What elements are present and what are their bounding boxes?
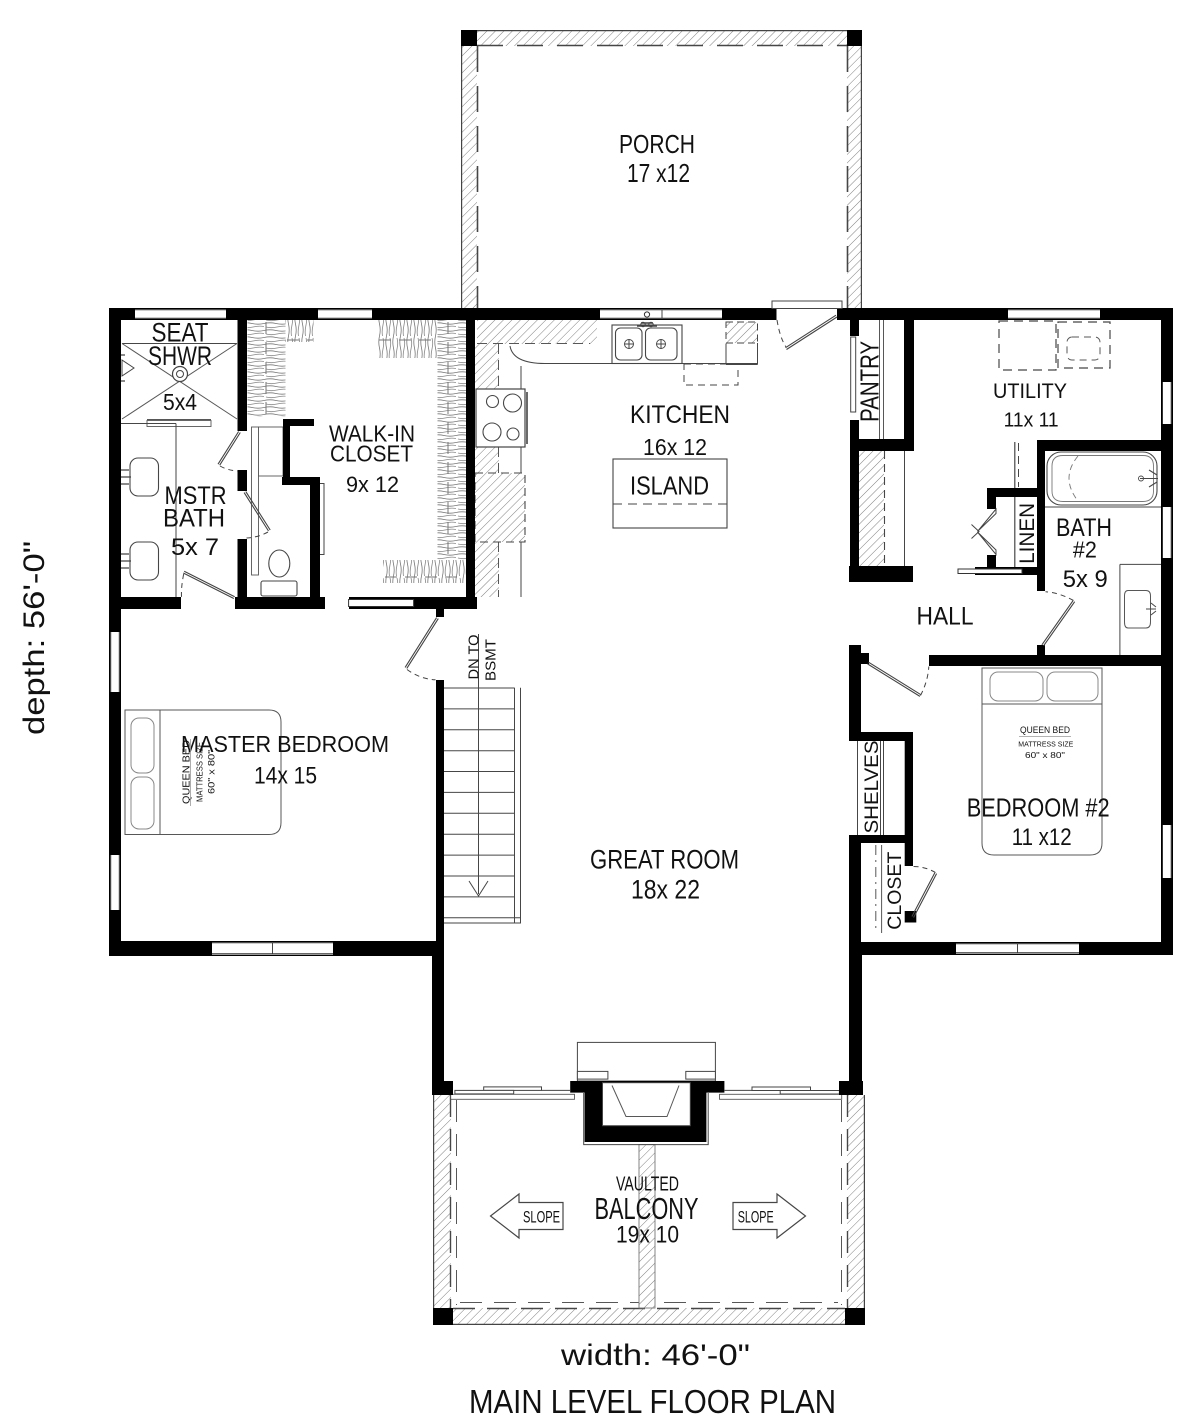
svg-text:CLOSET: CLOSET <box>885 851 906 929</box>
svg-text:9x 12: 9x 12 <box>346 472 399 497</box>
svg-text:BSMT: BSMT <box>483 639 500 681</box>
svg-text:5x 7: 5x 7 <box>171 534 219 561</box>
svg-text:#2: #2 <box>1073 537 1097 563</box>
svg-text:LINEN: LINEN <box>1016 503 1039 564</box>
svg-text:KITCHEN: KITCHEN <box>630 401 730 429</box>
svg-text:GREAT ROOM: GREAT ROOM <box>590 844 739 874</box>
svg-text:HALL: HALL <box>917 603 974 631</box>
svg-text:MATTRESS SIZE: MATTRESS SIZE <box>196 742 205 802</box>
svg-text:PANTRY: PANTRY <box>855 341 885 422</box>
svg-text:UTILITY: UTILITY <box>993 380 1067 403</box>
svg-text:SLOPE: SLOPE <box>738 1208 774 1227</box>
svg-text:SHWR: SHWR <box>148 341 212 371</box>
svg-text:SHELVES: SHELVES <box>862 741 883 834</box>
svg-text:11x 11: 11x 11 <box>1004 410 1059 432</box>
svg-text:MAIN LEVEL FLOOR PLAN: MAIN LEVEL FLOOR PLAN <box>469 1383 836 1420</box>
svg-text:depth: 56'-0": depth: 56'-0" <box>18 541 51 735</box>
svg-text:16x 12: 16x 12 <box>643 434 707 460</box>
svg-text:BATH: BATH <box>163 504 225 532</box>
svg-text:60" x 80": 60" x 80" <box>207 750 217 794</box>
svg-text:BEDROOM #2: BEDROOM #2 <box>967 793 1110 823</box>
svg-text:60" x 80": 60" x 80" <box>1025 750 1065 760</box>
svg-text:width: 46'-0": width: 46'-0" <box>560 1339 750 1372</box>
svg-text:CLOSET: CLOSET <box>330 440 413 466</box>
svg-text:19x 10: 19x 10 <box>616 1222 679 1249</box>
svg-text:17 x12: 17 x12 <box>627 158 690 188</box>
svg-text:MATTRESS SIZE: MATTRESS SIZE <box>1018 740 1073 749</box>
svg-text:ISLAND: ISLAND <box>630 470 709 500</box>
svg-text:5x 9: 5x 9 <box>1063 566 1108 593</box>
svg-text:11 x12: 11 x12 <box>1012 824 1072 851</box>
svg-text:SLOPE: SLOPE <box>523 1208 560 1227</box>
svg-text:DN TO: DN TO <box>466 635 483 680</box>
svg-text:QUEEN BED: QUEEN BED <box>1020 725 1070 736</box>
svg-text:5x4: 5x4 <box>163 389 197 415</box>
svg-text:14x 15: 14x 15 <box>254 762 317 789</box>
svg-text:BALCONY: BALCONY <box>595 1191 699 1226</box>
svg-text:PORCH: PORCH <box>619 129 695 159</box>
svg-text:18x 22: 18x 22 <box>631 875 700 905</box>
